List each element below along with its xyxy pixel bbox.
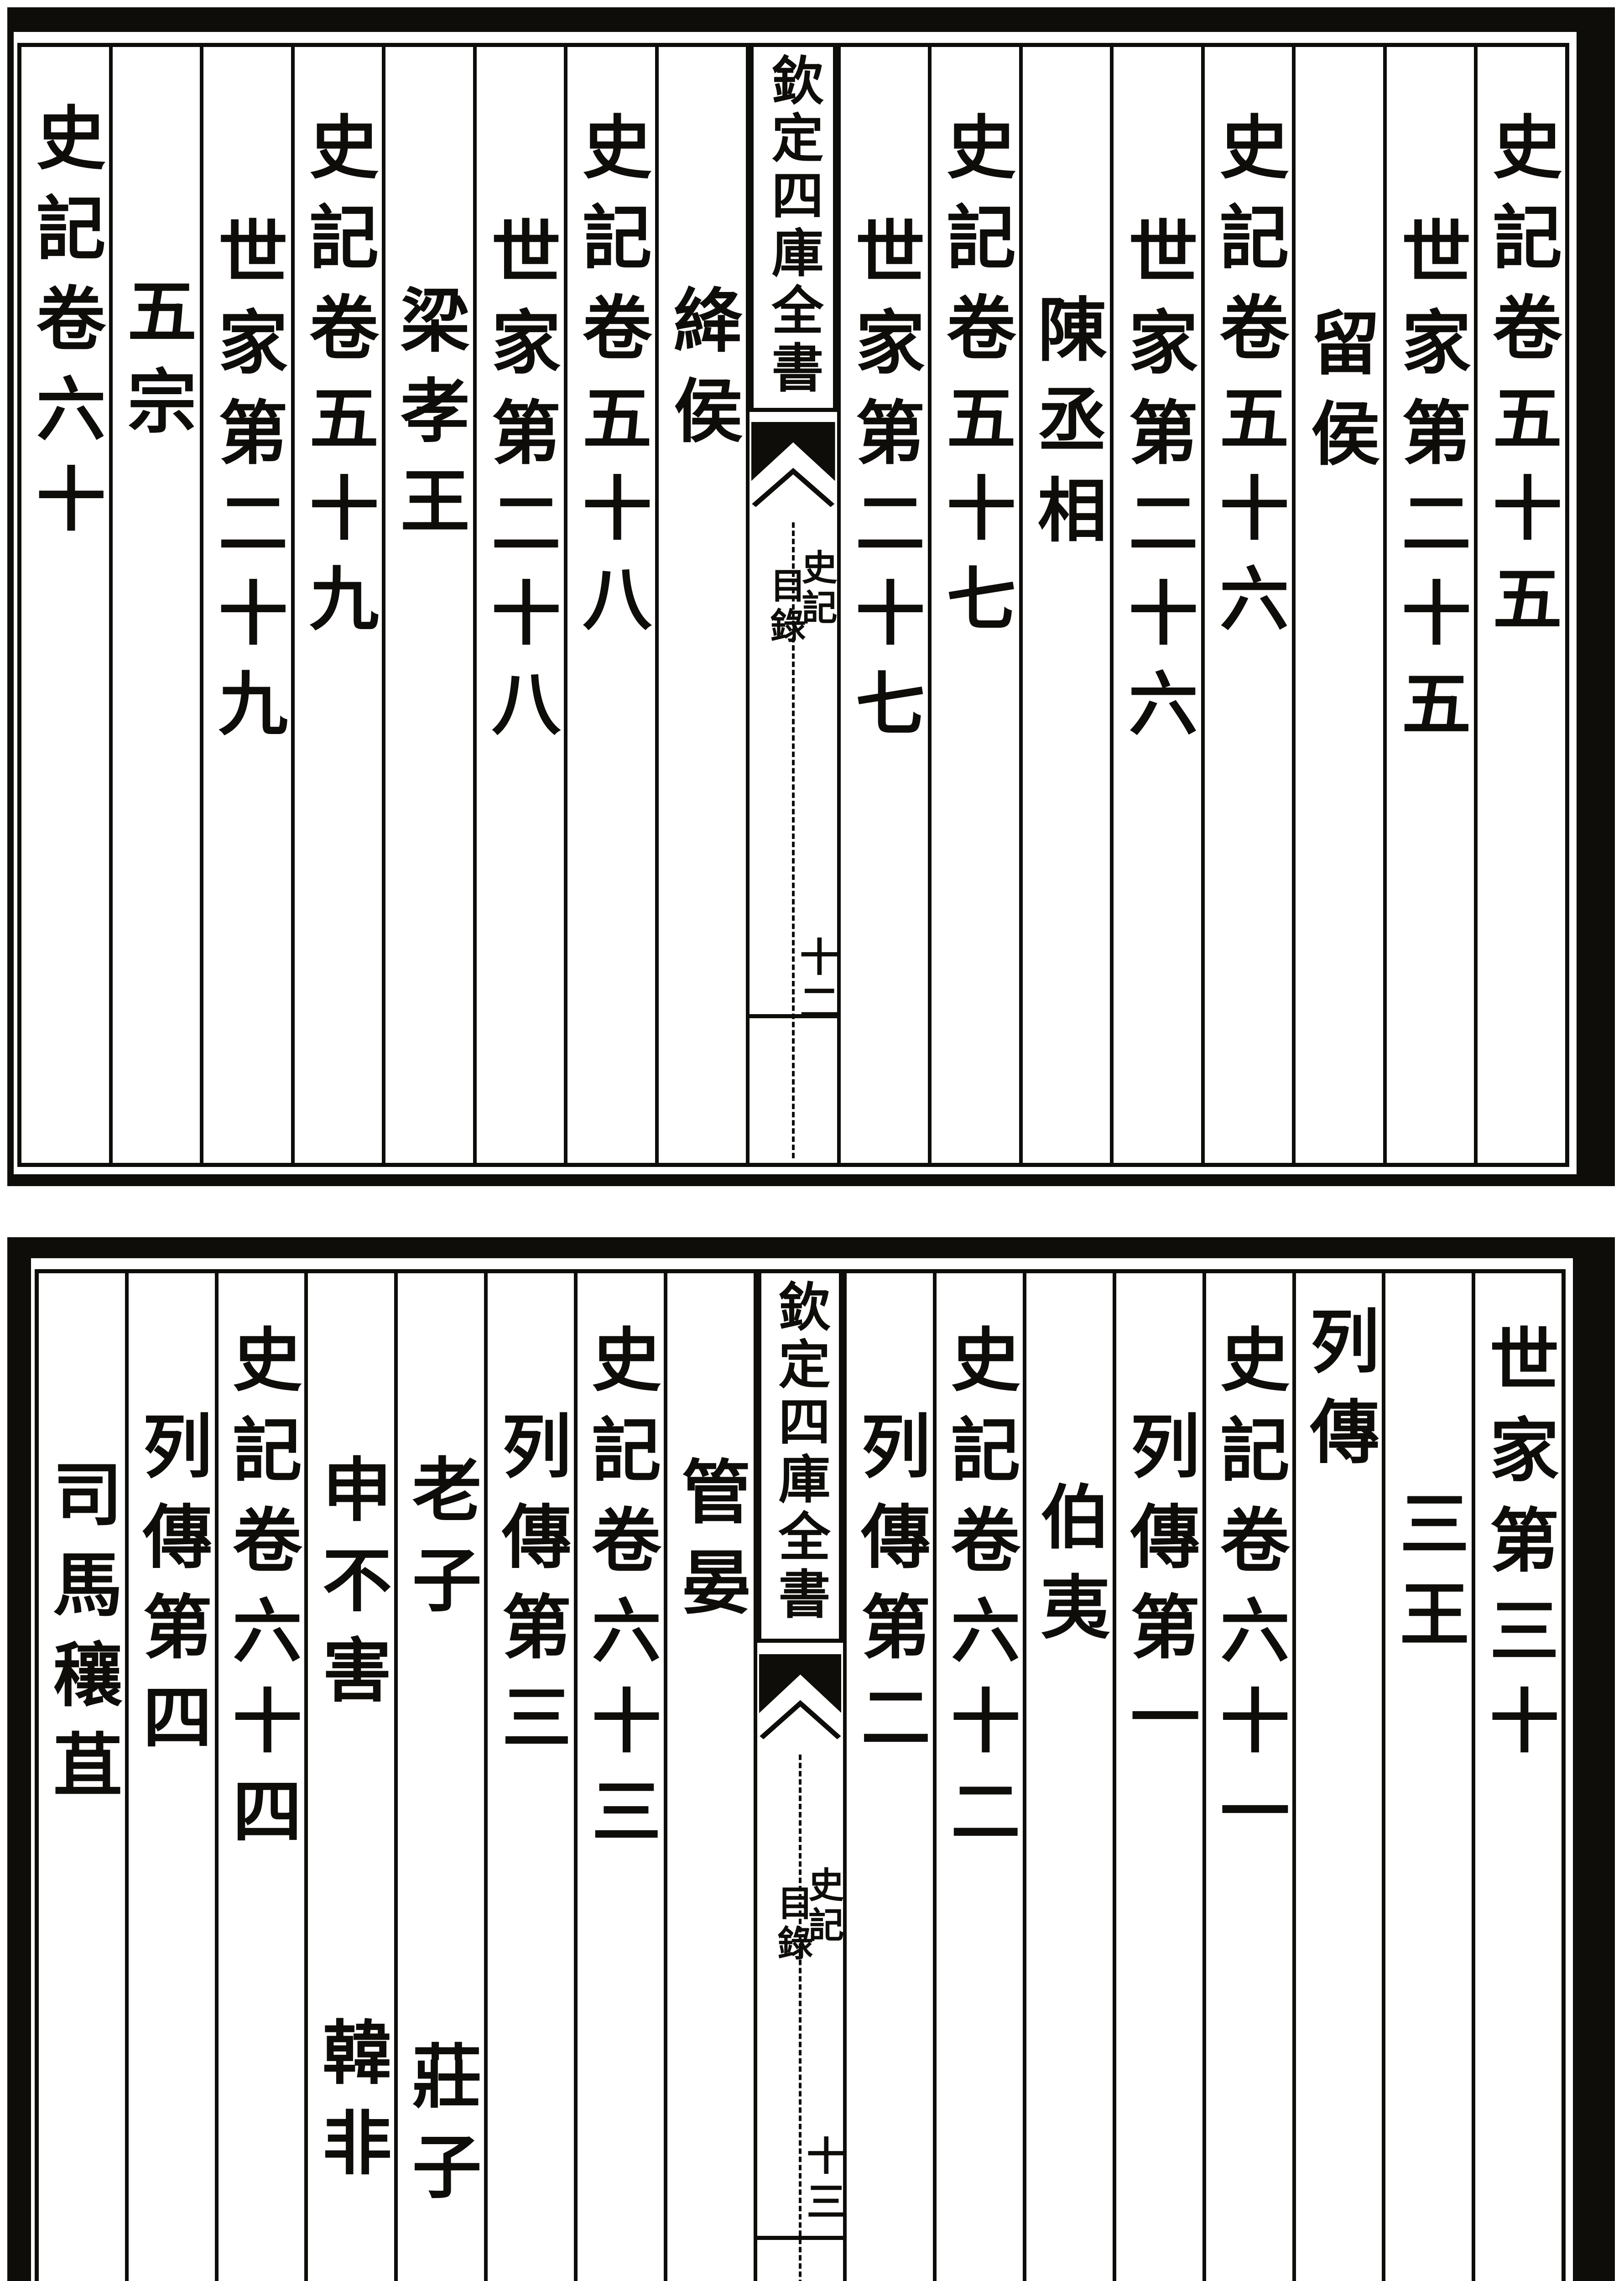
toc-column-textflow: 世家第三十 <box>1484 1273 1553 2281</box>
toc-entry-text: 司馬穰苴 <box>41 1273 123 1819</box>
toc-entry-text: 管晏 <box>670 1273 751 1636</box>
toc-entry-text: 列傳第三 <box>490 1273 572 1771</box>
toc-column-textflow: 史記卷六十四 <box>227 1273 296 2281</box>
toc-column-textflow: 絳侯 <box>667 47 737 1163</box>
toc-column-name: 陳丞相 <box>1019 47 1110 1163</box>
toc-entry-text: 世家第三十 <box>1478 1273 1560 1775</box>
center-fold-dashed-line <box>792 522 795 1158</box>
toc-entry-text-secondary: 韓非 <box>311 1724 392 2197</box>
toc-entry-text: 留侯 <box>1299 47 1380 488</box>
toc-column-name: 三王 <box>1382 1273 1472 2281</box>
toc-entry-text: 史記卷六十一 <box>1208 1273 1290 1865</box>
toc-entry-text: 列傳第一 <box>1119 1273 1200 1771</box>
toc-column-textflow: 司馬穰苴 <box>47 1273 116 2281</box>
toc-entry-text: 世家第二十八 <box>479 47 561 758</box>
toc-column-section: 列傳 <box>1292 1273 1382 2281</box>
toc-column-textflow: 史記卷五十五 <box>1487 47 1556 1163</box>
toc-entry-text: 史記卷五十六 <box>1208 47 1290 653</box>
toc-entry-text: 列傳 <box>1298 1273 1380 1486</box>
toc-column-textflow: 列傳第三 <box>496 1273 565 2281</box>
toc-entry-text: 三王 <box>1388 1273 1470 1668</box>
toc-entry-text: 老子 <box>401 1273 482 1634</box>
toc-column-section: 世家第二十五 <box>1383 47 1474 1163</box>
toc-column-textflow: 陳丞相 <box>1032 47 1101 1163</box>
toc-entry-text: 史記卷六十二 <box>939 1273 1021 1865</box>
toc-column-section: 世家第二十六 <box>1110 47 1201 1163</box>
top-leaf-columns: 史記卷五十五世家第二十五留侯史記卷五十六世家第二十六陳丞相史記卷五十七世家第二十… <box>17 43 1569 1167</box>
toc-column-name: 留侯 <box>1292 47 1383 1163</box>
toc-column-textflow: 申不害韓非 <box>317 1273 386 2281</box>
toc-column-chapter: 史記卷六十二 <box>933 1273 1023 2281</box>
bottom-leaf-columns: 世家第三十三王列傳史記卷六十一列傳第一伯夷史記卷六十二列傳第二欽定四庫全書史記目… <box>35 1269 1566 2281</box>
banxin-title-text: 欽定四庫全書 <box>774 1273 826 1639</box>
bottom-leaf-frame: 世家第三十三王列傳史記卷六十一列傳第一伯夷史記卷六十二列傳第二欽定四庫全書史記目… <box>7 1237 1615 2281</box>
toc-column-textflow: 列傳第四 <box>137 1273 206 2281</box>
toc-entry-text: 五宗 <box>115 47 197 456</box>
toc-column-section: 世家第二十九 <box>200 47 291 1163</box>
toc-entry-text: 史記卷六十三 <box>580 1273 661 1865</box>
toc-entry-text: 絳侯 <box>661 47 743 465</box>
toc-entry-text: 世家第二十六 <box>1117 47 1198 758</box>
toc-entry-text: 列傳第四 <box>131 1273 213 1771</box>
toc-column-name: 申不害韓非 <box>304 1273 394 2281</box>
toc-column-section: 列傳第四 <box>125 1273 215 2281</box>
toc-column-textflow: 史記卷六十三 <box>586 1273 655 2281</box>
toc-column-section: 世家第二十八 <box>473 47 564 1163</box>
banxin-column: 欽定四庫全書史記目錄十二 <box>746 47 837 1163</box>
toc-column-chapter: 史記卷五十九 <box>291 47 382 1163</box>
toc-entry-text: 史記卷五十五 <box>1481 47 1562 653</box>
toc-column-chapter: 史記卷六十 <box>21 47 109 1163</box>
toc-column-textflow: 列傳第一 <box>1124 1273 1194 2281</box>
toc-column-textflow: 三王 <box>1394 1273 1463 2281</box>
toc-column-textflow: 史記卷五十七 <box>941 47 1010 1163</box>
fishtail-mark-icon <box>751 422 835 513</box>
toc-column-chapter: 史記卷六十四 <box>215 1273 305 2281</box>
toc-column-name: 五宗 <box>109 47 200 1163</box>
toc-column-section: 列傳第一 <box>1113 1273 1202 2281</box>
toc-column-textflow: 史記卷六十一 <box>1214 1273 1284 2281</box>
toc-column-textflow: 老子莊子 <box>406 1273 476 2281</box>
toc-column-textflow: 世家第二十七 <box>850 47 919 1163</box>
toc-entry-text: 史記卷五十八 <box>571 47 652 653</box>
toc-column-textflow: 史記卷六十二 <box>945 1273 1015 2281</box>
banxin-column: 欽定四庫全書史記目錄十三 <box>754 1273 843 2281</box>
toc-entry-text: 史記卷五十九 <box>297 47 379 653</box>
toc-entry-text: 史記卷六十四 <box>221 1273 302 1865</box>
toc-column-chapter: 史記卷五十六 <box>1201 47 1292 1163</box>
toc-column-textflow: 五宗 <box>121 47 191 1163</box>
toc-column-textflow: 管晏 <box>676 1273 745 2281</box>
toc-column-name: 管晏 <box>664 1273 754 2281</box>
toc-entry-text: 陳丞相 <box>1026 47 1108 564</box>
center-fold-dashed-line <box>799 1755 802 2281</box>
toc-entry-text: 列傳第二 <box>849 1273 931 1771</box>
toc-column-textflow: 梁孝王 <box>395 47 464 1163</box>
banxin-section-label: 目錄 <box>774 1885 810 1965</box>
toc-entry-text: 史記卷六十 <box>25 47 106 553</box>
toc-column-section: 列傳第二 <box>843 1273 933 2281</box>
fishtail-mark-icon <box>759 1654 842 1745</box>
toc-entry-text: 伯夷 <box>1029 1273 1110 1661</box>
toc-entry-text-secondary: 莊子 <box>401 1634 482 2221</box>
banxin-title-text: 欽定四庫全書 <box>767 47 819 408</box>
toc-column-textflow: 列傳第二 <box>855 1273 925 2281</box>
toc-column-chapter: 史記卷六十三 <box>574 1273 664 2281</box>
top-leaf-frame: 史記卷五十五世家第二十五留侯史記卷五十六世家第二十六陳丞相史記卷五十七世家第二十… <box>7 7 1615 1186</box>
scanned-book-page: 史記卷五十五世家第二十五留侯史記卷五十六世家第二十六陳丞相史記卷五十七世家第二十… <box>0 0 1624 2281</box>
toc-column-textflow: 史記卷五十八 <box>577 47 646 1163</box>
toc-column-name: 梁孝王 <box>382 47 473 1163</box>
toc-column-name: 司馬穰苴 <box>39 1273 125 2281</box>
toc-column-name: 伯夷 <box>1023 1273 1113 2281</box>
toc-entry-text: 史記卷五十七 <box>935 47 1016 653</box>
toc-entry-text: 世家第二十五 <box>1390 47 1472 758</box>
toc-entry-text: 世家第二十七 <box>844 47 926 758</box>
toc-column-textflow: 史記卷五十九 <box>303 47 373 1163</box>
banxin-title-box: 欽定四庫全書 <box>757 1273 843 1643</box>
toc-entry-text: 申不害 <box>311 1273 392 1724</box>
toc-column-section: 世家第三十 <box>1472 1273 1562 2281</box>
toc-column-textflow: 世家第二十六 <box>1123 47 1192 1163</box>
toc-entry-text: 世家第二十九 <box>207 47 288 758</box>
toc-column-textflow: 列傳 <box>1304 1273 1374 2281</box>
toc-column-chapter: 史記卷五十五 <box>1474 47 1565 1163</box>
banxin-title-box: 欽定四庫全書 <box>750 47 837 412</box>
toc-column-textflow: 留侯 <box>1305 47 1374 1163</box>
toc-column-name: 絳侯 <box>655 47 746 1163</box>
toc-column-textflow: 世家第二十八 <box>485 47 555 1163</box>
toc-column-textflow: 史記卷六十 <box>31 47 100 1163</box>
toc-entry-text: 梁孝王 <box>389 47 470 555</box>
banxin-leaf-number: 十三 <box>803 2135 842 2227</box>
toc-column-chapter: 史記卷五十七 <box>928 47 1019 1163</box>
toc-column-name: 老子莊子 <box>394 1273 484 2281</box>
toc-column-chapter: 史記卷六十一 <box>1202 1273 1292 2281</box>
toc-column-textflow: 伯夷 <box>1035 1273 1104 2281</box>
toc-column-textflow: 世家第二十五 <box>1396 47 1465 1163</box>
toc-column-textflow: 世家第二十九 <box>213 47 282 1163</box>
toc-column-chapter: 史記卷五十八 <box>564 47 655 1163</box>
toc-column-section: 世家第二十七 <box>837 47 928 1163</box>
banxin-section-label: 目錄 <box>767 567 803 647</box>
toc-column-textflow: 史記卷五十六 <box>1214 47 1283 1163</box>
toc-column-section: 列傳第三 <box>484 1273 574 2281</box>
